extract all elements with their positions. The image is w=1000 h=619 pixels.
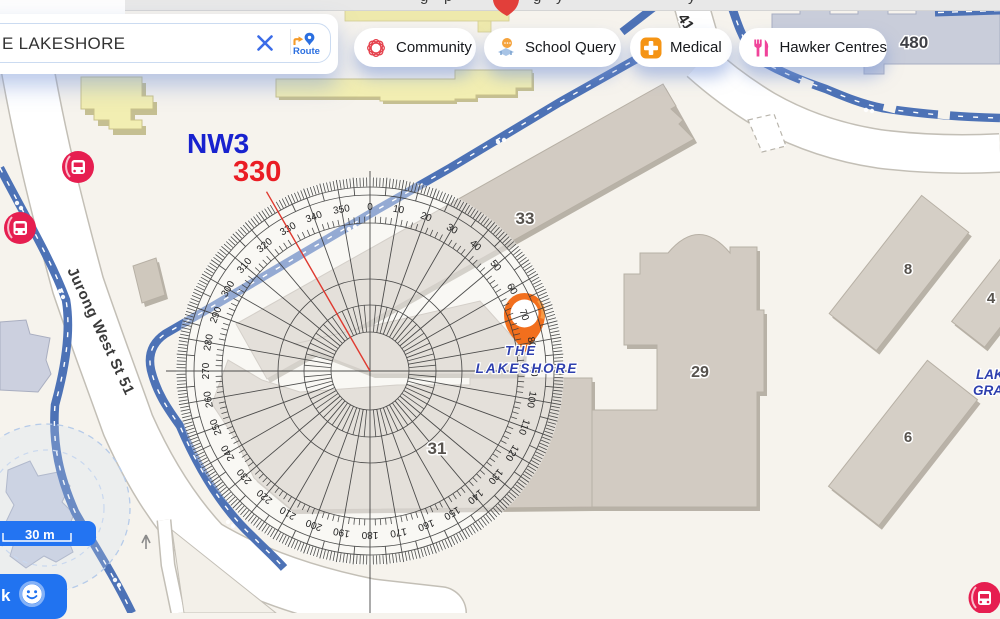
- svg-text:LAKESHORE: LAKESHORE: [476, 361, 579, 376]
- svg-text:LAKESIDE: LAKESIDE: [976, 367, 1000, 382]
- svg-text:270: 270: [201, 362, 212, 379]
- svg-text:GRAND: GRAND: [973, 383, 1000, 398]
- svg-text:6: 6: [904, 429, 912, 446]
- svg-text:29: 29: [691, 364, 709, 381]
- svg-text:0: 0: [367, 202, 373, 213]
- svg-text:31: 31: [428, 439, 447, 458]
- svg-text:480: 480: [900, 33, 928, 52]
- svg-text:THE: THE: [505, 343, 537, 358]
- svg-text:180: 180: [361, 529, 378, 540]
- svg-text:NW3: NW3: [187, 128, 249, 159]
- svg-text:330: 330: [233, 156, 281, 188]
- svg-text:33: 33: [516, 209, 535, 228]
- svg-text:8: 8: [904, 261, 912, 278]
- svg-text:4: 4: [987, 290, 996, 307]
